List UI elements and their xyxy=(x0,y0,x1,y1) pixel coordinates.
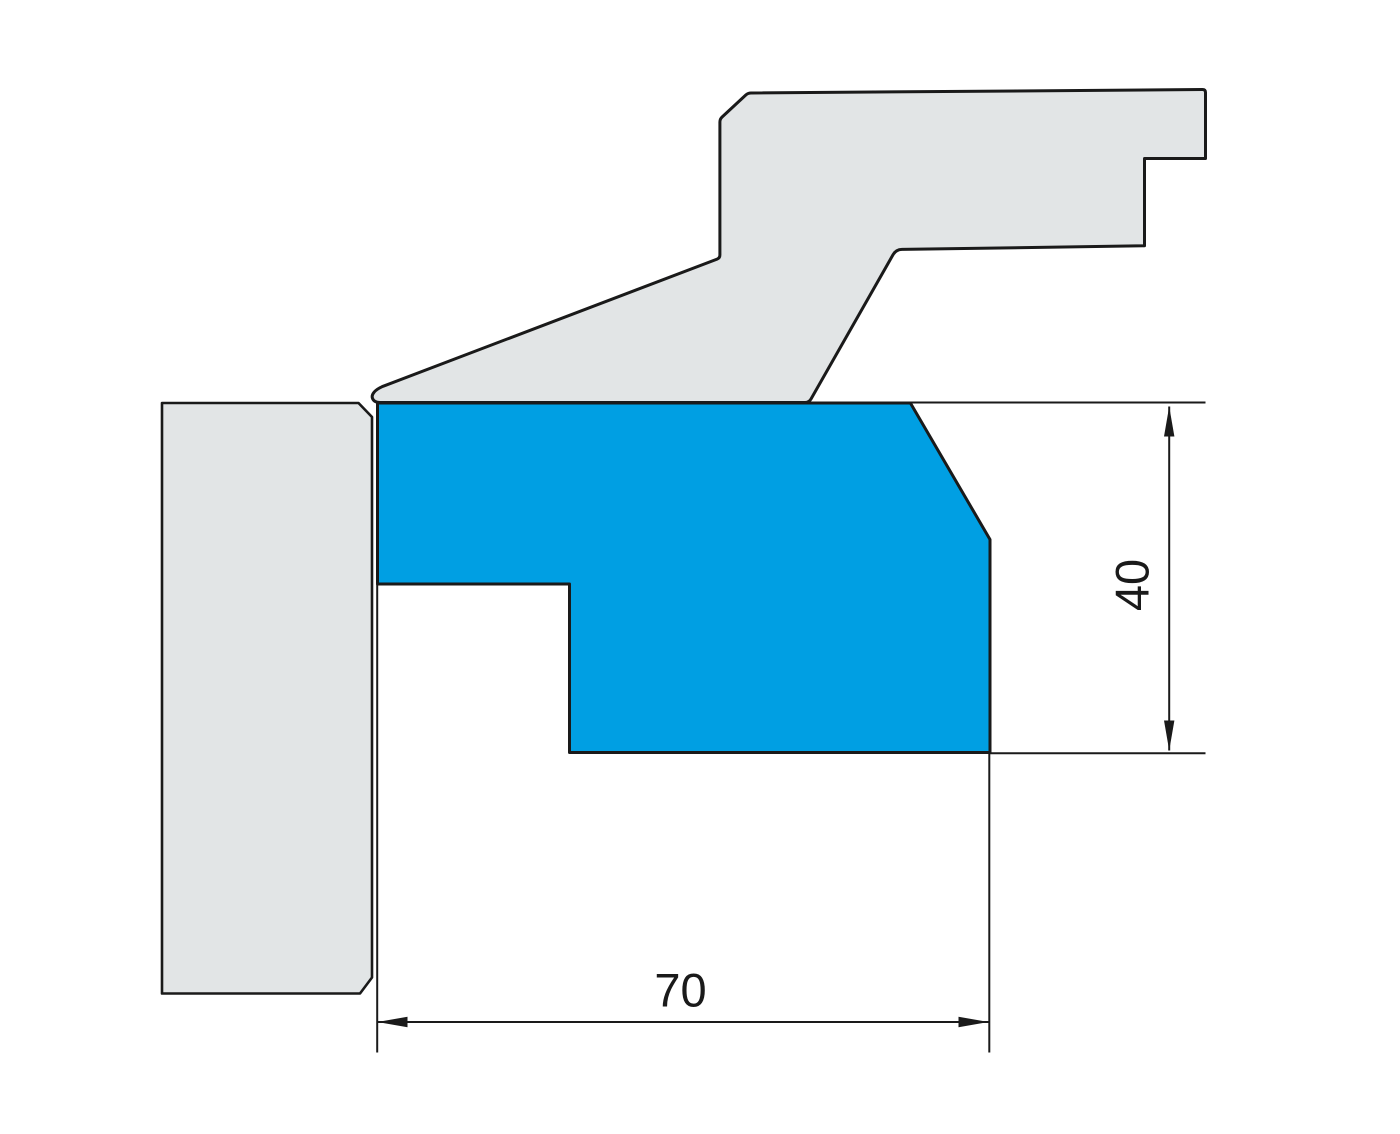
svg-text:40: 40 xyxy=(1106,559,1159,611)
svg-text:70: 70 xyxy=(654,964,706,1017)
